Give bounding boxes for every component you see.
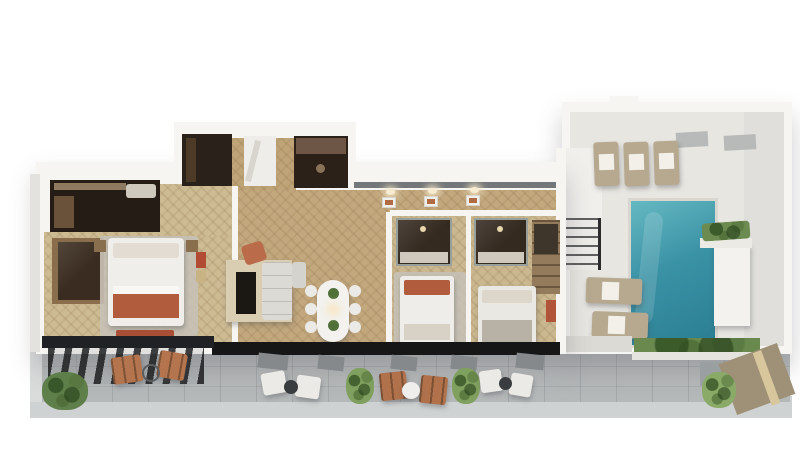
terrace-bush-right	[702, 372, 736, 408]
pool-planter-hedge	[701, 220, 750, 241]
terrace-wood-chair-2	[156, 350, 188, 381]
bedroom-3-wall-art	[546, 300, 556, 322]
table-plant-2	[328, 320, 339, 331]
corridor-downlight-2	[428, 188, 437, 194]
closet-shelving	[186, 138, 196, 182]
terrace-bush-1	[346, 368, 374, 404]
terrace-side-table-2	[499, 377, 512, 390]
terrace-deck-chair-2	[419, 375, 449, 406]
corridor-art-print-3	[469, 198, 477, 203]
corridor-downlight-1	[386, 189, 395, 195]
master-nightstand-2	[186, 240, 198, 252]
master-nightstand-1	[94, 240, 106, 252]
wall-vent-1	[676, 131, 709, 148]
terrace-wood-chair-1	[110, 354, 143, 385]
master-wall-art-red	[196, 252, 206, 268]
ensuite-2-pendant	[420, 226, 426, 232]
master-bath-mirror	[54, 183, 126, 190]
terrace-plant-left	[42, 372, 88, 410]
bedroom-3-wardrobe-doors	[534, 224, 558, 254]
sofa-chaise	[292, 262, 306, 288]
wall-living-bedroom2	[386, 212, 392, 354]
table-plant-1	[328, 288, 339, 299]
towel-1	[599, 154, 615, 171]
towel-5	[608, 316, 626, 335]
kitchen-tv-column	[236, 272, 256, 314]
master-bath-vanity	[54, 196, 74, 228]
bedroom-2-throw	[404, 324, 450, 340]
dining-chair-5	[349, 303, 361, 315]
bedroom-3-blanket	[482, 320, 532, 342]
master-wall-art-tan	[196, 270, 206, 282]
master-corner-floor	[158, 184, 234, 236]
ensuite-3-vanity	[478, 252, 524, 263]
dining-chair-3	[305, 321, 317, 333]
floor-plan-render	[0, 0, 800, 450]
door-panel-3	[390, 355, 417, 372]
corridor-art-print-2	[427, 199, 435, 204]
corridor-downlight-3	[470, 187, 479, 193]
terrace-side-table-1	[284, 380, 298, 394]
terrace-white-chair-1	[260, 370, 287, 396]
master-window-frame	[42, 336, 214, 348]
master-bed-fold	[113, 286, 179, 294]
left-outer-wall	[30, 174, 40, 352]
stair-railing	[598, 218, 601, 270]
dining-chair-1	[305, 285, 317, 297]
door-panel-5	[515, 353, 544, 371]
guest-bath-marble-wall	[296, 138, 346, 154]
dining-chair-6	[349, 321, 361, 333]
guest-bath-basin	[316, 164, 325, 173]
master-bed-pillows	[113, 243, 179, 258]
corridor-art-print-1	[385, 200, 393, 205]
wall-corridor-bedrooms	[390, 210, 562, 216]
bedroom-2-pillows	[404, 280, 450, 295]
ensuite-3-pendant	[497, 226, 503, 232]
terrace-white-chair-2	[295, 374, 322, 399]
towel-2	[629, 154, 645, 171]
door-panel-2	[317, 355, 344, 372]
master-bath-tub	[126, 184, 156, 198]
bedroom-3-pillows	[482, 290, 532, 303]
terrace-wire-table	[142, 364, 160, 382]
terrace-bush-2	[452, 368, 480, 404]
terrace-round-table	[402, 382, 420, 399]
deck-lower-step	[566, 336, 632, 352]
towel-3	[659, 153, 675, 170]
floor-plan-scene	[0, 0, 800, 450]
wall-vent-2	[724, 134, 757, 151]
wall-bedroom2-bedroom3	[466, 216, 471, 354]
dining-chair-2	[305, 303, 317, 315]
towel-4	[602, 282, 620, 301]
terrace-white-chair-4	[508, 372, 533, 397]
pool-side-wall	[714, 244, 750, 326]
door-panel-1	[257, 352, 288, 370]
dining-chair-4	[349, 285, 361, 297]
pool-deck-notch	[610, 96, 638, 108]
dining-pendant-light	[329, 305, 338, 314]
sofa	[262, 262, 292, 320]
corridor-window-strip	[354, 182, 558, 188]
master-bed-throw	[113, 294, 179, 318]
ensuite-2-vanity	[400, 252, 448, 263]
